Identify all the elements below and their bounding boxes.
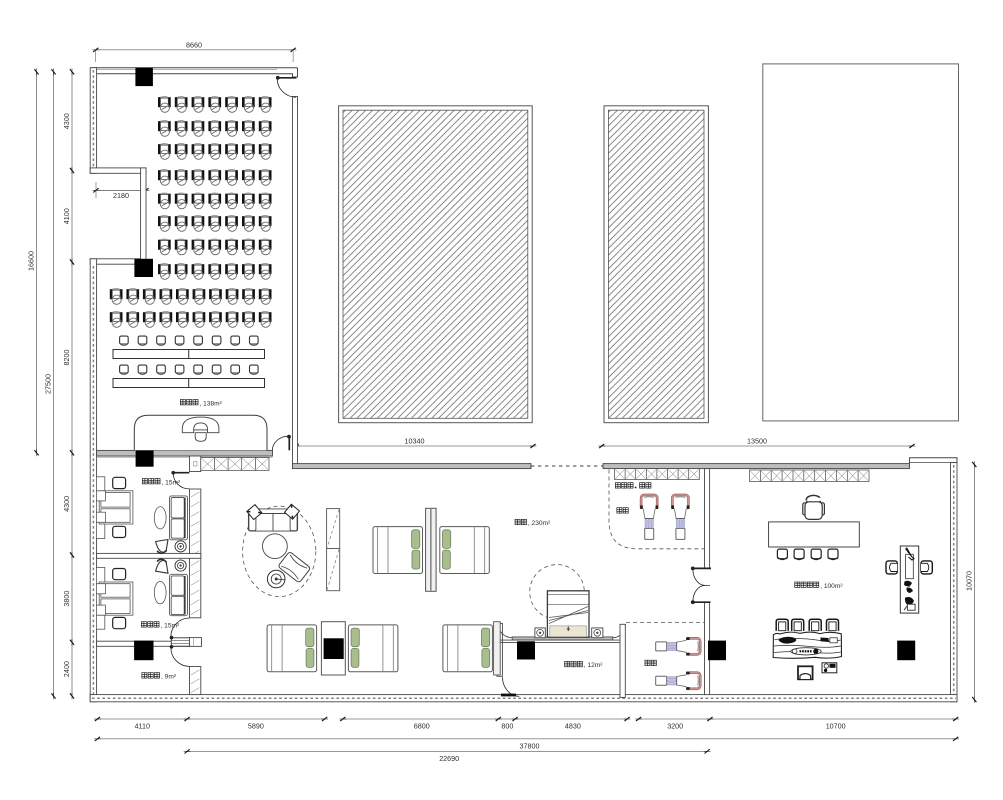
svg-text:37800: 37800 [520,741,540,750]
svg-text:, 15m²: , 15m² [161,623,180,630]
svg-text:10340: 10340 [405,437,425,446]
svg-text:4300: 4300 [62,496,71,512]
svg-text:10700: 10700 [826,721,846,730]
svg-text:8660: 8660 [186,41,202,50]
svg-text:16600: 16600 [27,251,36,271]
svg-text:3200: 3200 [667,721,683,730]
svg-text:4110: 4110 [135,721,150,730]
svg-text:, 9m²: , 9m² [161,674,177,681]
svg-text:8200: 8200 [62,350,71,366]
svg-text:, 15m²: , 15m² [162,479,181,486]
svg-text:, 138m²: , 138m² [200,400,223,407]
svg-text:2400: 2400 [62,661,71,677]
svg-text:27500: 27500 [44,374,53,394]
svg-text:22690: 22690 [439,754,459,763]
svg-text:10070: 10070 [965,571,974,591]
svg-text:, 100m²: , 100m² [820,583,843,590]
svg-text:6800: 6800 [414,721,430,730]
svg-text:2180: 2180 [113,191,129,200]
svg-text:3800: 3800 [62,591,71,607]
svg-text:4300: 4300 [62,113,71,129]
svg-text:800: 800 [501,721,513,730]
svg-text:4830: 4830 [565,721,581,730]
svg-text:13500: 13500 [747,437,767,446]
svg-text:5890: 5890 [248,721,264,730]
svg-text:, 230m²: , 230m² [528,520,551,527]
svg-text:4100: 4100 [62,208,71,224]
svg-text:, 12m²: , 12m² [584,662,603,669]
